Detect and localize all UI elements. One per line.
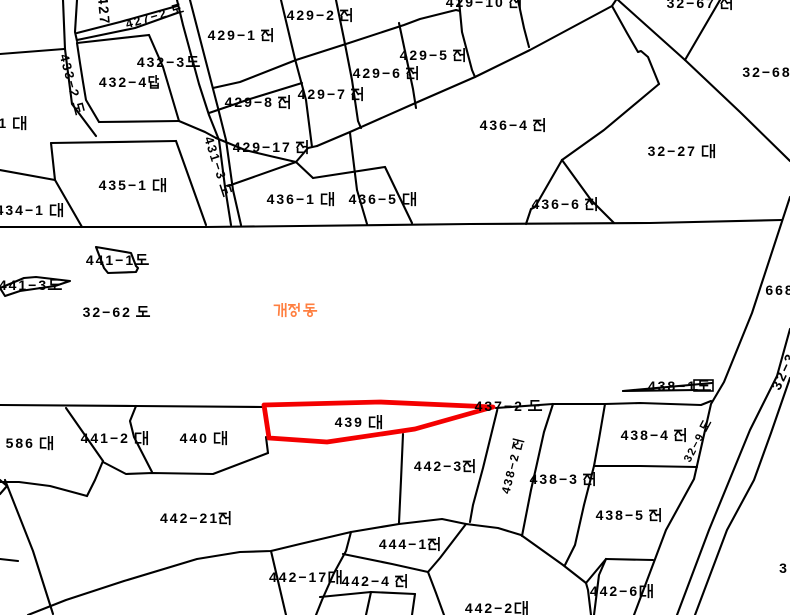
svg-text:32−68: 32−68 — [742, 64, 790, 80]
svg-text:439: 439 — [335, 414, 364, 430]
svg-text:429−5: 429−5 — [400, 47, 449, 63]
svg-text:440: 440 — [180, 430, 209, 446]
svg-text:438−4: 438−4 — [621, 427, 670, 443]
svg-text:436−1: 436−1 — [267, 191, 316, 207]
svg-text:429−7: 429−7 — [298, 86, 347, 102]
svg-text:436−6: 436−6 — [532, 196, 581, 212]
svg-text:429−10: 429−10 — [446, 0, 505, 10]
svg-text:32−62: 32−62 — [83, 304, 132, 320]
svg-text:435−1: 435−1 — [99, 177, 148, 193]
svg-text:442−3: 442−3 — [414, 458, 463, 474]
svg-text:441−2: 441−2 — [81, 430, 130, 446]
svg-text:441−3: 441−3 — [0, 277, 48, 293]
svg-text:438−3: 438−3 — [530, 471, 579, 487]
svg-text:442−21: 442−21 — [160, 510, 219, 526]
svg-text:444−1: 444−1 — [379, 536, 428, 552]
svg-text:436−5: 436−5 — [349, 191, 398, 207]
svg-text:586: 586 — [6, 435, 35, 451]
svg-text:442−6: 442−6 — [590, 583, 639, 599]
svg-text:438−1: 438−1 — [648, 378, 697, 394]
svg-text:32−27: 32−27 — [648, 143, 697, 159]
svg-text:3: 3 — [779, 560, 789, 576]
svg-text:432−4: 432−4 — [99, 74, 148, 90]
svg-text:434−1: 434−1 — [0, 202, 45, 218]
svg-text:429−17: 429−17 — [233, 139, 292, 155]
svg-text:429−1: 429−1 — [208, 27, 257, 43]
svg-text:668: 668 — [765, 282, 790, 298]
svg-text:429−2: 429−2 — [287, 7, 336, 23]
svg-text:442−2: 442−2 — [465, 600, 514, 615]
svg-text:32−67: 32−67 — [667, 0, 716, 11]
svg-text:432−3: 432−3 — [137, 54, 186, 70]
svg-text:442−17: 442−17 — [269, 569, 328, 585]
svg-text:1: 1 — [0, 115, 8, 131]
svg-text:441−1: 441−1 — [86, 252, 135, 268]
svg-text:437−2: 437−2 — [475, 398, 524, 414]
svg-text:429−8: 429−8 — [225, 94, 274, 110]
svg-text:438−5: 438−5 — [596, 507, 645, 523]
svg-text:427: 427 — [95, 0, 113, 26]
svg-text:429−6: 429−6 — [353, 65, 402, 81]
svg-text:442−4: 442−4 — [342, 573, 391, 589]
svg-text:436−4: 436−4 — [480, 117, 529, 133]
